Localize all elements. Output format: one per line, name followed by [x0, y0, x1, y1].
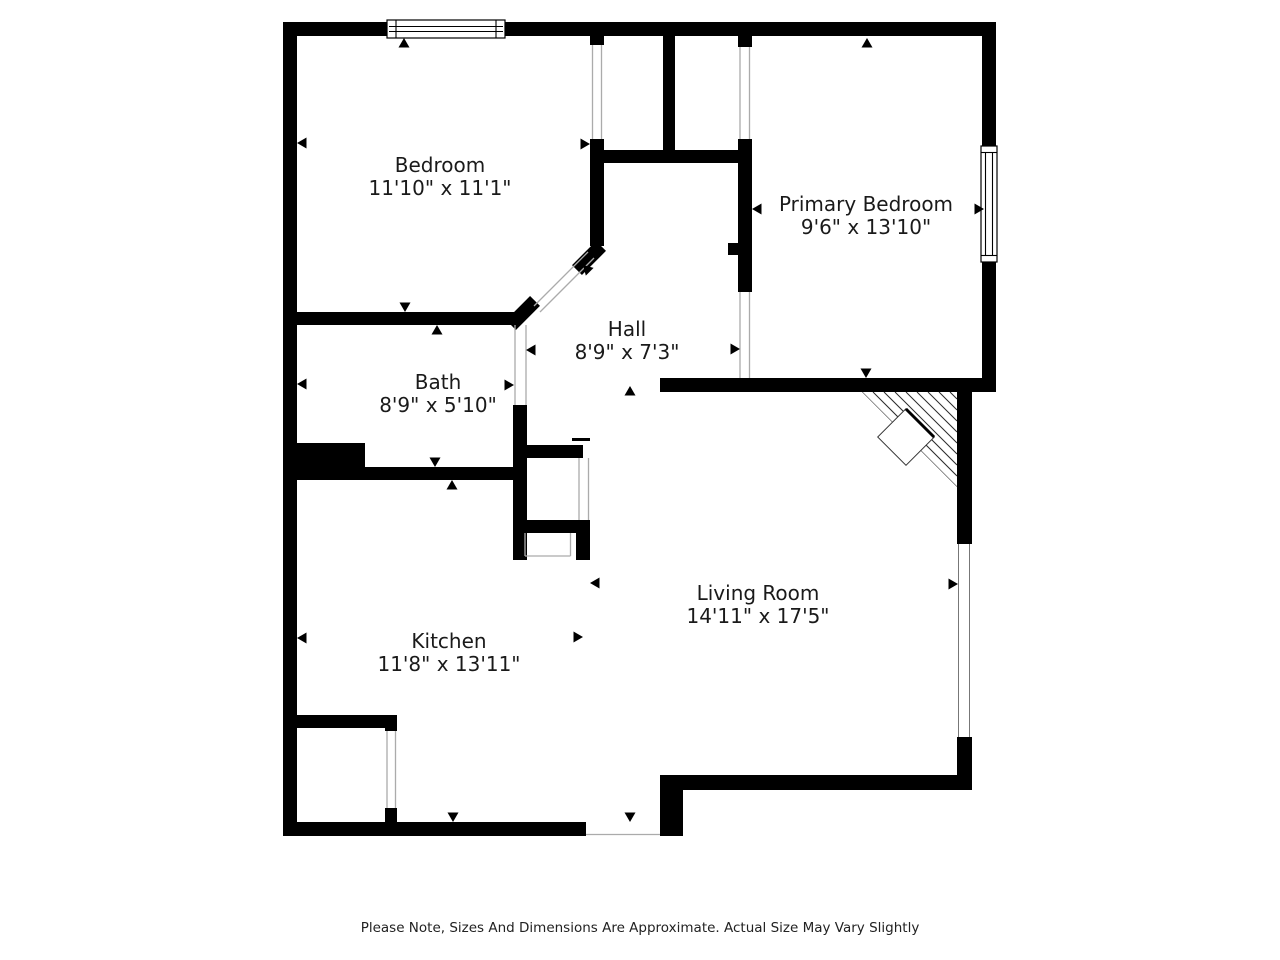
- wall-primary-bottom: [660, 378, 996, 392]
- room-dims-hall: 8'9" x 7'3": [575, 340, 680, 364]
- wall-bath-bottom: [283, 467, 517, 480]
- wall-hall-closet-top: [527, 445, 583, 458]
- marker: [297, 379, 307, 390]
- bedroom-diagonal-door: [534, 252, 588, 306]
- wall-bedroom-closet-stub: [590, 36, 604, 45]
- marker: [752, 204, 762, 215]
- wall-bottom-kitchen: [283, 822, 586, 836]
- room-dims-primary-bedroom: 9'6" x 13'10": [801, 215, 931, 239]
- marker: [574, 632, 584, 643]
- interior-walls: [283, 36, 752, 822]
- marker: [862, 38, 873, 48]
- marker: [297, 138, 307, 149]
- stair-break-diamond: [878, 409, 935, 466]
- room-label-bedroom: Bedroom: [395, 153, 485, 177]
- marker: [400, 303, 411, 313]
- window-primary-bedroom: [981, 146, 997, 262]
- marker: [432, 325, 443, 335]
- wall-pantry-corner: [385, 715, 397, 731]
- window-top-bedroom: [387, 20, 505, 38]
- diagonal-wall-stubs: [506, 241, 606, 330]
- floor-plan-page: Bedroom 11'10" x 11'1" Primary Bedroom 9…: [0, 0, 1280, 960]
- marker: [949, 579, 959, 590]
- window-frame: [387, 20, 505, 38]
- marker: [625, 386, 636, 396]
- disclaimer-text: Please Note, Sizes And Dimensions Are Ap…: [361, 920, 920, 936]
- floor-plan-canvas: Bedroom 11'10" x 11'1" Primary Bedroom 9…: [0, 0, 1280, 960]
- marker: [590, 578, 600, 589]
- marker: [505, 380, 515, 391]
- wall-closet-divider: [663, 36, 675, 157]
- wall-left: [283, 22, 297, 836]
- wall-closets-bottom: [590, 150, 752, 163]
- wall-right-lower: [957, 737, 972, 790]
- wall-right-mid: [957, 392, 972, 544]
- room-dims-bath: 8'9" x 5'10": [379, 393, 497, 417]
- window-living-room: [959, 544, 970, 737]
- wall-bedroom-bath: [283, 312, 517, 325]
- wall-primary-closet-stub: [738, 36, 752, 47]
- wall-hall-east: [738, 139, 752, 292]
- wall-pantry-top: [283, 715, 397, 728]
- room-dims-bedroom: 11'10" x 11'1": [368, 176, 511, 200]
- room-label-primary-bedroom: Primary Bedroom: [779, 192, 953, 216]
- marker: [581, 139, 591, 150]
- marker: [625, 813, 636, 823]
- wall-doorstop-stub: [728, 243, 738, 255]
- bath-builtin-block: [283, 443, 365, 468]
- marker: [399, 38, 410, 48]
- closet-door-tick: [572, 438, 590, 441]
- marker: [430, 458, 441, 468]
- room-label-hall: Hall: [608, 317, 646, 341]
- room-label-kitchen: Kitchen: [411, 629, 486, 653]
- wall-bottom-living: [671, 775, 971, 790]
- marker: [526, 345, 536, 356]
- marker: [297, 633, 307, 644]
- marker: [448, 813, 459, 823]
- marker: [861, 369, 872, 379]
- wall-hall-closet-corner: [576, 520, 590, 560]
- room-dims-living-room: 14'11" x 17'5": [686, 604, 829, 628]
- window-frame: [981, 146, 997, 262]
- marker: [447, 480, 458, 490]
- marker: [731, 344, 741, 355]
- stairs-hatch: [851, 392, 957, 498]
- room-label-living-room: Living Room: [697, 581, 820, 605]
- wall-pantry-stub: [385, 808, 397, 822]
- room-label-bath: Bath: [415, 370, 462, 394]
- room-labels: Bedroom 11'10" x 11'1" Primary Bedroom 9…: [368, 153, 953, 676]
- room-dims-kitchen: 11'8" x 13'11": [377, 652, 520, 676]
